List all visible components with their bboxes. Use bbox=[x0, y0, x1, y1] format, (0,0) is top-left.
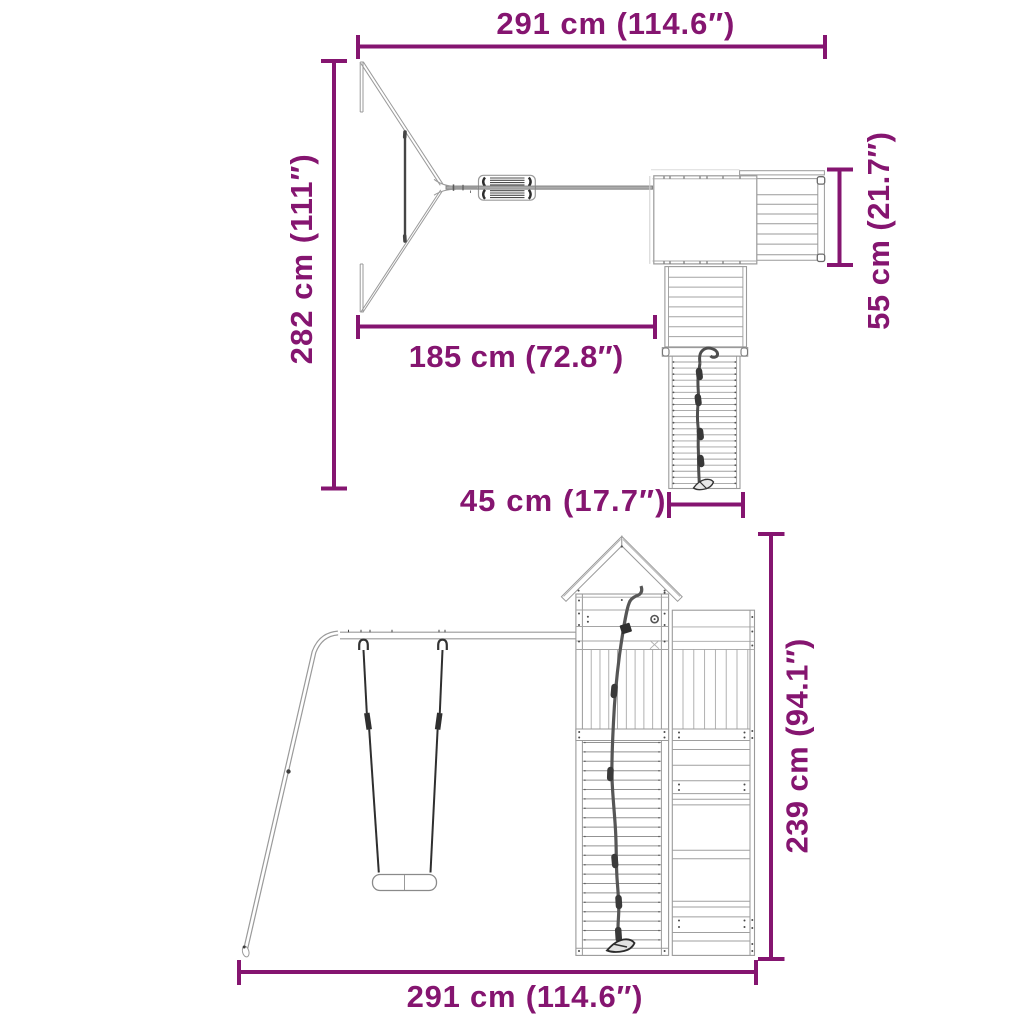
svg-text:282 cm (111″): 282 cm (111″) bbox=[284, 153, 319, 364]
svg-text:239 cm (94.1″): 239 cm (94.1″) bbox=[780, 638, 815, 853]
svg-text:185 cm (72.8″): 185 cm (72.8″) bbox=[409, 339, 624, 374]
svg-text:55 cm (21.7″): 55 cm (21.7″) bbox=[861, 132, 896, 330]
svg-text:291 cm (114.6″): 291 cm (114.6″) bbox=[496, 6, 735, 41]
svg-text:291 cm (114.6″): 291 cm (114.6″) bbox=[407, 979, 644, 1014]
svg-text:45 cm (17.7″): 45 cm (17.7″) bbox=[460, 483, 667, 518]
